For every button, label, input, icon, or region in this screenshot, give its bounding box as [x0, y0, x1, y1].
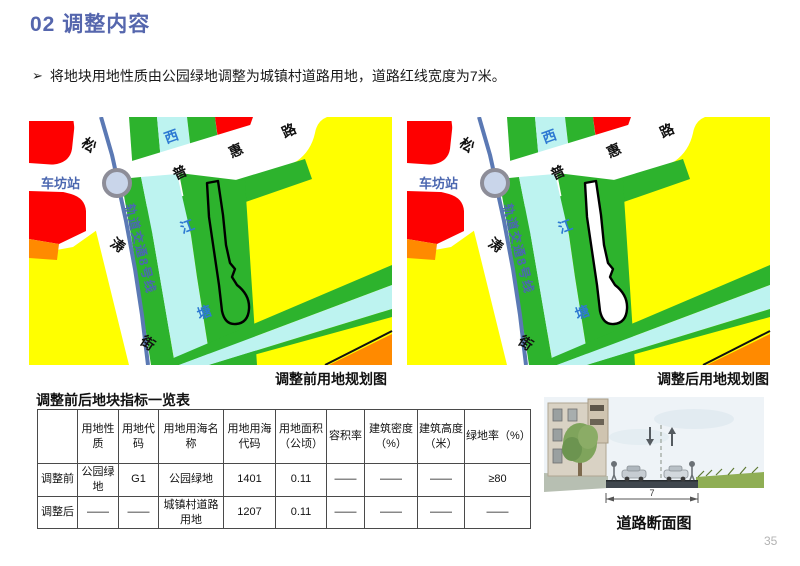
table-cell: 城镇村道路用地 — [159, 496, 224, 529]
table-row: 调整前公园绿地G1公园绿地14010.11——————≥80 — [38, 464, 531, 497]
metro-station-icon — [104, 170, 130, 196]
dim-arrow-left — [606, 497, 614, 502]
table-cell: 1401 — [224, 464, 276, 497]
table-cell: —— — [327, 496, 365, 529]
table-header-cell: 用地用海名称 — [159, 410, 224, 464]
table-cell: 公园绿地 — [78, 464, 119, 497]
cloud — [609, 429, 669, 445]
station-name-label: 车坊站 — [419, 176, 458, 191]
table-cell: 调整后 — [38, 496, 78, 529]
window — [568, 409, 577, 421]
table-cell: —— — [119, 496, 159, 529]
landuse-map-after: 松 涛 街 普 惠 路 西 江 塘 车坊站 轨道交通8号线 — [406, 117, 771, 365]
table-head: 用地性质用地代码用地用海名称用地用海代码用地面积（公顷）容积率建筑密度（%）建筑… — [38, 410, 531, 464]
map-svg: 松 涛 街 普 惠 路 西 江 塘 车坊站 轨道交通8号线 — [28, 117, 393, 365]
table-cell: —— — [327, 464, 365, 497]
window — [553, 409, 562, 421]
arrow-bullet-icon: ➢ — [32, 66, 43, 85]
table-cell: —— — [365, 464, 418, 497]
table-header-cell: 容积率 — [327, 410, 365, 464]
slide-page: 02 调整内容 ➢ 将地块用地性质由公园绿地调整为城镇村道路用地，道路红线宽度为… — [0, 0, 800, 566]
road-section-drawing: 7 — [544, 397, 764, 509]
table-header-cell: 用地代码 — [119, 410, 159, 464]
map-before-caption: 调整前用地规划图 — [226, 369, 436, 389]
bullet-point: ➢ 将地块用地性质由公园绿地调整为城镇村道路用地，道路红线宽度为7米。 — [32, 66, 506, 86]
table-header-cell: 用地面积（公顷） — [276, 410, 327, 464]
table-cell: —— — [78, 496, 119, 529]
table-header-cell: 建筑高度（米） — [418, 410, 465, 464]
bullet-text: 将地块用地性质由公园绿地调整为城镇村道路用地，道路红线宽度为7米。 — [50, 66, 506, 86]
table-header-cell: 建筑密度（%） — [365, 410, 418, 464]
page-title: 02 调整内容 — [30, 8, 150, 38]
table-cell: —— — [365, 496, 418, 529]
table-header-cell: 用地性质 — [78, 410, 119, 464]
tree-foliage — [578, 425, 598, 449]
cloud — [654, 409, 734, 429]
table-cell: 公园绿地 — [159, 464, 224, 497]
table-cell: ≥80 — [465, 464, 531, 497]
table-row: 调整后————城镇村道路用地12070.11———————— — [38, 496, 531, 529]
indicator-table: 用地性质用地代码用地用海名称用地用海代码用地面积（公顷）容积率建筑密度（%）建筑… — [37, 409, 531, 529]
page-number: 35 — [764, 534, 777, 548]
road-deck — [606, 481, 698, 488]
station-name-label: 车坊站 — [41, 176, 80, 191]
table-cell: —— — [418, 464, 465, 497]
dim-arrow-right — [690, 497, 698, 502]
table-cell: —— — [418, 496, 465, 529]
map-svg: 松 涛 街 普 惠 路 西 江 塘 车坊站 轨道交通8号线 — [406, 117, 771, 365]
table-header-cell: 用地用海代码 — [224, 410, 276, 464]
table-cell: 0.11 — [276, 496, 327, 529]
table-cell: —— — [465, 496, 531, 529]
table-body: 调整前公园绿地G1公园绿地14010.11——————≥80调整后————城镇村… — [38, 464, 531, 529]
table-header-cell — [38, 410, 78, 464]
road-width-label: 7 — [649, 488, 654, 498]
table-cell: 1207 — [224, 496, 276, 529]
window — [553, 449, 562, 463]
window — [553, 429, 562, 441]
road-section-caption: 道路断面图 — [544, 512, 764, 533]
indicator-table-title: 调整前后地块指标一览表 — [36, 390, 190, 410]
table-cell: 调整前 — [38, 464, 78, 497]
map-after-caption: 调整后用地规划图 — [608, 369, 800, 389]
table-header-cell: 绿地率（%） — [465, 410, 531, 464]
road-section-figure: 7 — [544, 397, 764, 509]
balcony — [590, 405, 604, 411]
metro-station-icon — [482, 170, 508, 196]
landuse-map-before: 松 涛 街 普 惠 路 西 江 塘 车坊站 轨道交通8号线 — [28, 117, 393, 365]
table-cell: 0.11 — [276, 464, 327, 497]
table-cell: G1 — [119, 464, 159, 497]
balcony — [590, 419, 604, 425]
